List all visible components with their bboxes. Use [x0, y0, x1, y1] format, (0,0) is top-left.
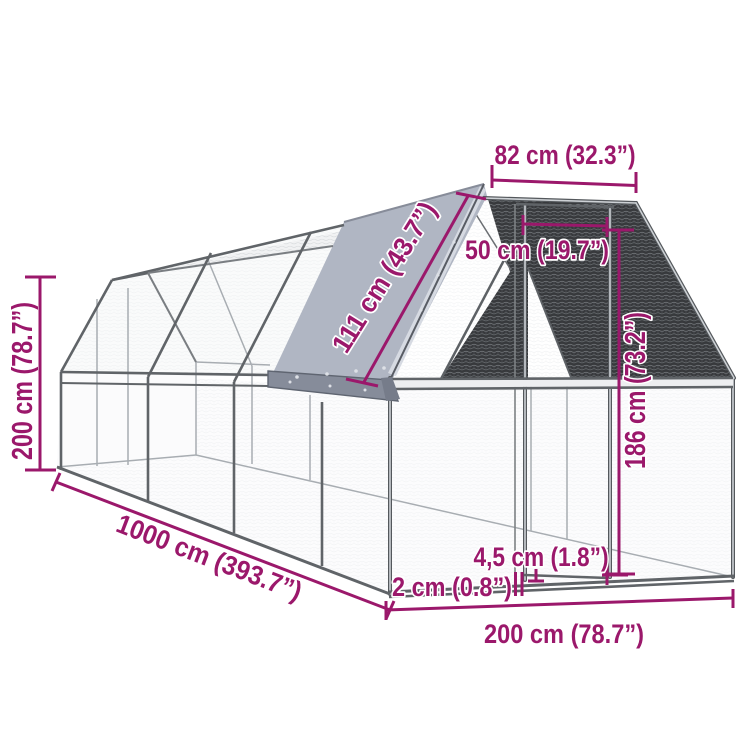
- svg-text:82 cm (32.3”): 82 cm (32.3”): [495, 140, 636, 170]
- svg-text:50 cm (19.7”): 50 cm (19.7”): [465, 235, 609, 265]
- svg-text:4,5 cm (1.8”): 4,5 cm (1.8”): [474, 542, 609, 572]
- svg-text:186 cm (73.2”): 186 cm (73.2”): [620, 312, 652, 469]
- svg-text:200 cm (78.7”): 200 cm (78.7”): [7, 302, 39, 460]
- svg-text:2 cm (0.8”): 2 cm (0.8”): [392, 572, 512, 602]
- svg-text:200 cm (78.7”): 200 cm (78.7”): [484, 619, 644, 649]
